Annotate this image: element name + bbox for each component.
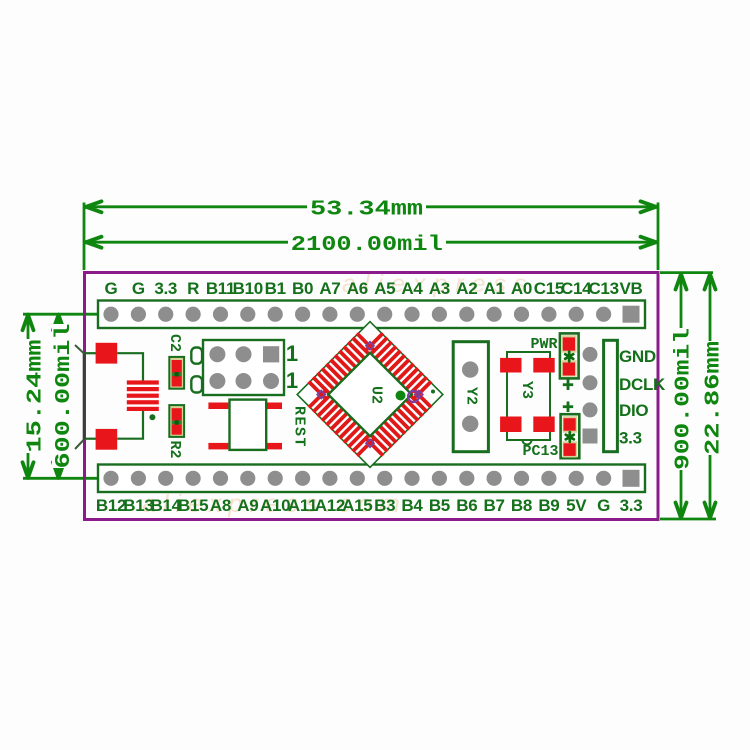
svg-text:3.3: 3.3 — [154, 279, 177, 298]
svg-text:R2: R2 — [166, 440, 183, 458]
svg-text:Y2: Y2 — [462, 387, 479, 405]
svg-text:B4: B4 — [401, 496, 423, 515]
svg-text:15.24mm: 15.24mm — [25, 340, 48, 453]
svg-text:B0: B0 — [292, 279, 313, 298]
svg-text:B13: B13 — [123, 496, 153, 515]
svg-text:B15: B15 — [178, 496, 208, 515]
svg-text:GND: GND — [619, 347, 656, 366]
svg-text:A4: A4 — [401, 279, 423, 298]
svg-text:A6: A6 — [347, 279, 368, 298]
svg-text:600.00mil: 600.00mil — [53, 324, 76, 469]
svg-text:PC13: PC13 — [522, 443, 558, 460]
svg-text:B1: B1 — [265, 279, 286, 298]
svg-text:A0: A0 — [511, 279, 532, 298]
svg-text:53.34mm: 53.34mm — [310, 199, 423, 222]
svg-text:B6: B6 — [456, 496, 477, 515]
svg-text:B11: B11 — [206, 279, 235, 298]
svg-text:DCLK: DCLK — [619, 375, 666, 394]
svg-text:VB: VB — [619, 279, 642, 298]
svg-text:A15: A15 — [342, 496, 372, 515]
svg-text:A7: A7 — [319, 279, 340, 298]
svg-text:A3: A3 — [429, 279, 450, 298]
svg-text:B7: B7 — [484, 496, 505, 515]
svg-text:3.3: 3.3 — [620, 496, 643, 515]
svg-text:B9: B9 — [538, 496, 559, 515]
svg-text:A8: A8 — [210, 496, 231, 515]
svg-text:A1: A1 — [484, 279, 505, 298]
svg-text:A12: A12 — [315, 496, 345, 515]
svg-text:A11: A11 — [288, 496, 317, 515]
svg-text:B8: B8 — [511, 496, 532, 515]
svg-text:1: 1 — [286, 368, 298, 393]
svg-text:C15: C15 — [534, 279, 564, 298]
svg-text:900.00mil: 900.00mil — [673, 328, 696, 470]
svg-text:REST: REST — [291, 406, 308, 448]
svg-text:DIO: DIO — [619, 401, 648, 420]
svg-text:2100.00mil: 2100.00mil — [291, 234, 443, 257]
svg-text:B12: B12 — [96, 496, 126, 515]
svg-text:A2: A2 — [456, 279, 477, 298]
svg-text:C13: C13 — [588, 279, 618, 298]
svg-text:B5: B5 — [429, 496, 450, 515]
svg-text:G: G — [597, 496, 610, 515]
svg-text:G: G — [132, 279, 145, 298]
svg-text:5V: 5V — [566, 496, 587, 515]
svg-text:G: G — [105, 279, 118, 298]
svg-text:1: 1 — [286, 341, 298, 366]
svg-text:22.86mm: 22.86mm — [703, 341, 726, 455]
svg-text:U2: U2 — [367, 386, 384, 404]
svg-text:PWR: PWR — [530, 336, 557, 353]
svg-text:B10: B10 — [233, 279, 263, 298]
svg-text:B3: B3 — [374, 496, 395, 515]
svg-text:C2: C2 — [166, 334, 183, 352]
svg-text:Y3: Y3 — [518, 381, 535, 399]
svg-text:A9: A9 — [237, 496, 258, 515]
svg-text:3.3: 3.3 — [619, 429, 642, 448]
svg-text:R: R — [187, 279, 199, 298]
svg-text:A10: A10 — [260, 496, 290, 515]
svg-text:A5: A5 — [374, 279, 395, 298]
